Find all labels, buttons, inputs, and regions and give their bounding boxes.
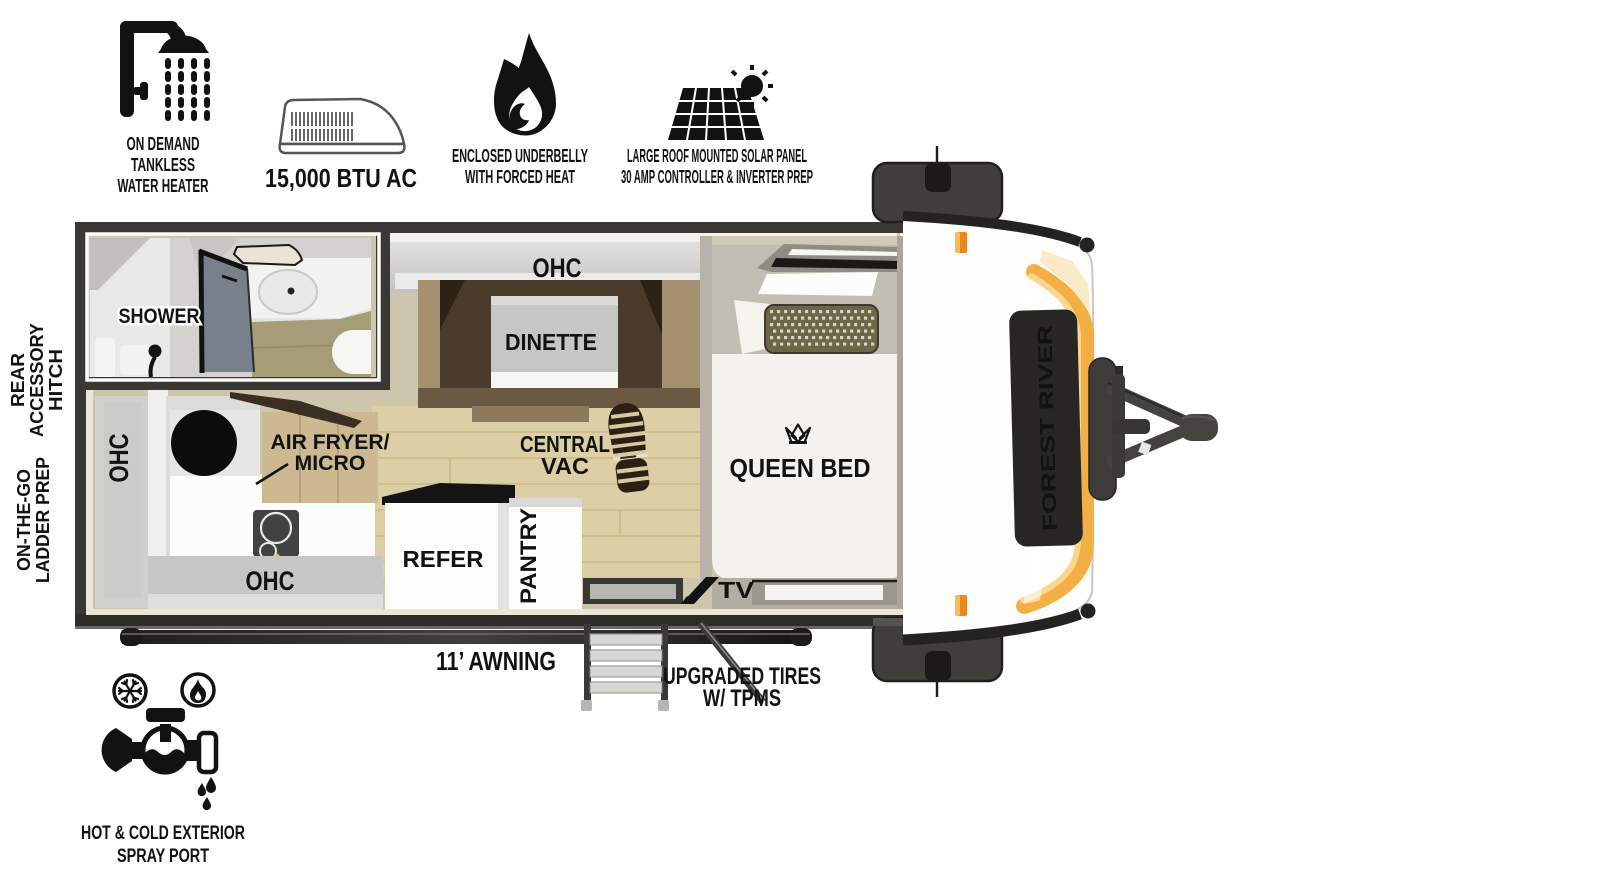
svg-text:TV: TV	[718, 577, 755, 603]
svg-text:HITCH: HITCH	[46, 349, 66, 411]
svg-text:ON DEMAND: ON DEMAND	[127, 134, 200, 154]
svg-text:15,000 BTU AC: 15,000 BTU AC	[265, 163, 417, 193]
svg-text:AIR FRYER/: AIR FRYER/	[271, 431, 390, 454]
svg-text:HOT & COLD EXTERIOR: HOT & COLD EXTERIOR	[81, 823, 245, 844]
svg-text:OHC: OHC	[104, 434, 134, 483]
svg-text:ENCLOSED UNDERBELLY: ENCLOSED UNDERBELLY	[452, 146, 588, 166]
svg-text:LADDER PREP: LADDER PREP	[33, 457, 53, 583]
svg-text:LARGE ROOF MOUNTED SOLAR PANEL: LARGE ROOF MOUNTED SOLAR PANEL	[627, 146, 807, 166]
svg-text:WATER HEATER: WATER HEATER	[118, 176, 209, 196]
svg-text:PANTRY: PANTRY	[516, 508, 541, 604]
svg-text:QUEEN BED: QUEEN BED	[730, 453, 871, 483]
svg-text:VAC: VAC	[541, 453, 589, 479]
svg-text:DINETTE: DINETTE	[505, 329, 597, 355]
svg-text:SPRAY PORT: SPRAY PORT	[117, 846, 209, 867]
svg-text:TANKLESS: TANKLESS	[131, 155, 195, 175]
svg-text:ON-THE-GO: ON-THE-GO	[14, 469, 34, 571]
svg-text:W/ TPMS: W/ TPMS	[703, 685, 781, 712]
svg-text:ACCESSORY: ACCESSORY	[27, 323, 47, 437]
svg-text:WITH FORCED HEAT: WITH FORCED HEAT	[465, 167, 575, 187]
svg-text:OHC: OHC	[246, 566, 295, 596]
svg-text:MICRO: MICRO	[295, 452, 366, 475]
svg-text:11’ AWNING: 11’ AWNING	[436, 646, 556, 676]
svg-text:SHOWER: SHOWER	[119, 305, 200, 328]
svg-text:REFER: REFER	[403, 546, 484, 572]
svg-text:OHC: OHC	[533, 253, 582, 283]
svg-text:REAR: REAR	[8, 353, 28, 407]
svg-text:30 AMP CONTROLLER & INVERTER P: 30 AMP CONTROLLER & INVERTER PREP	[621, 167, 813, 187]
